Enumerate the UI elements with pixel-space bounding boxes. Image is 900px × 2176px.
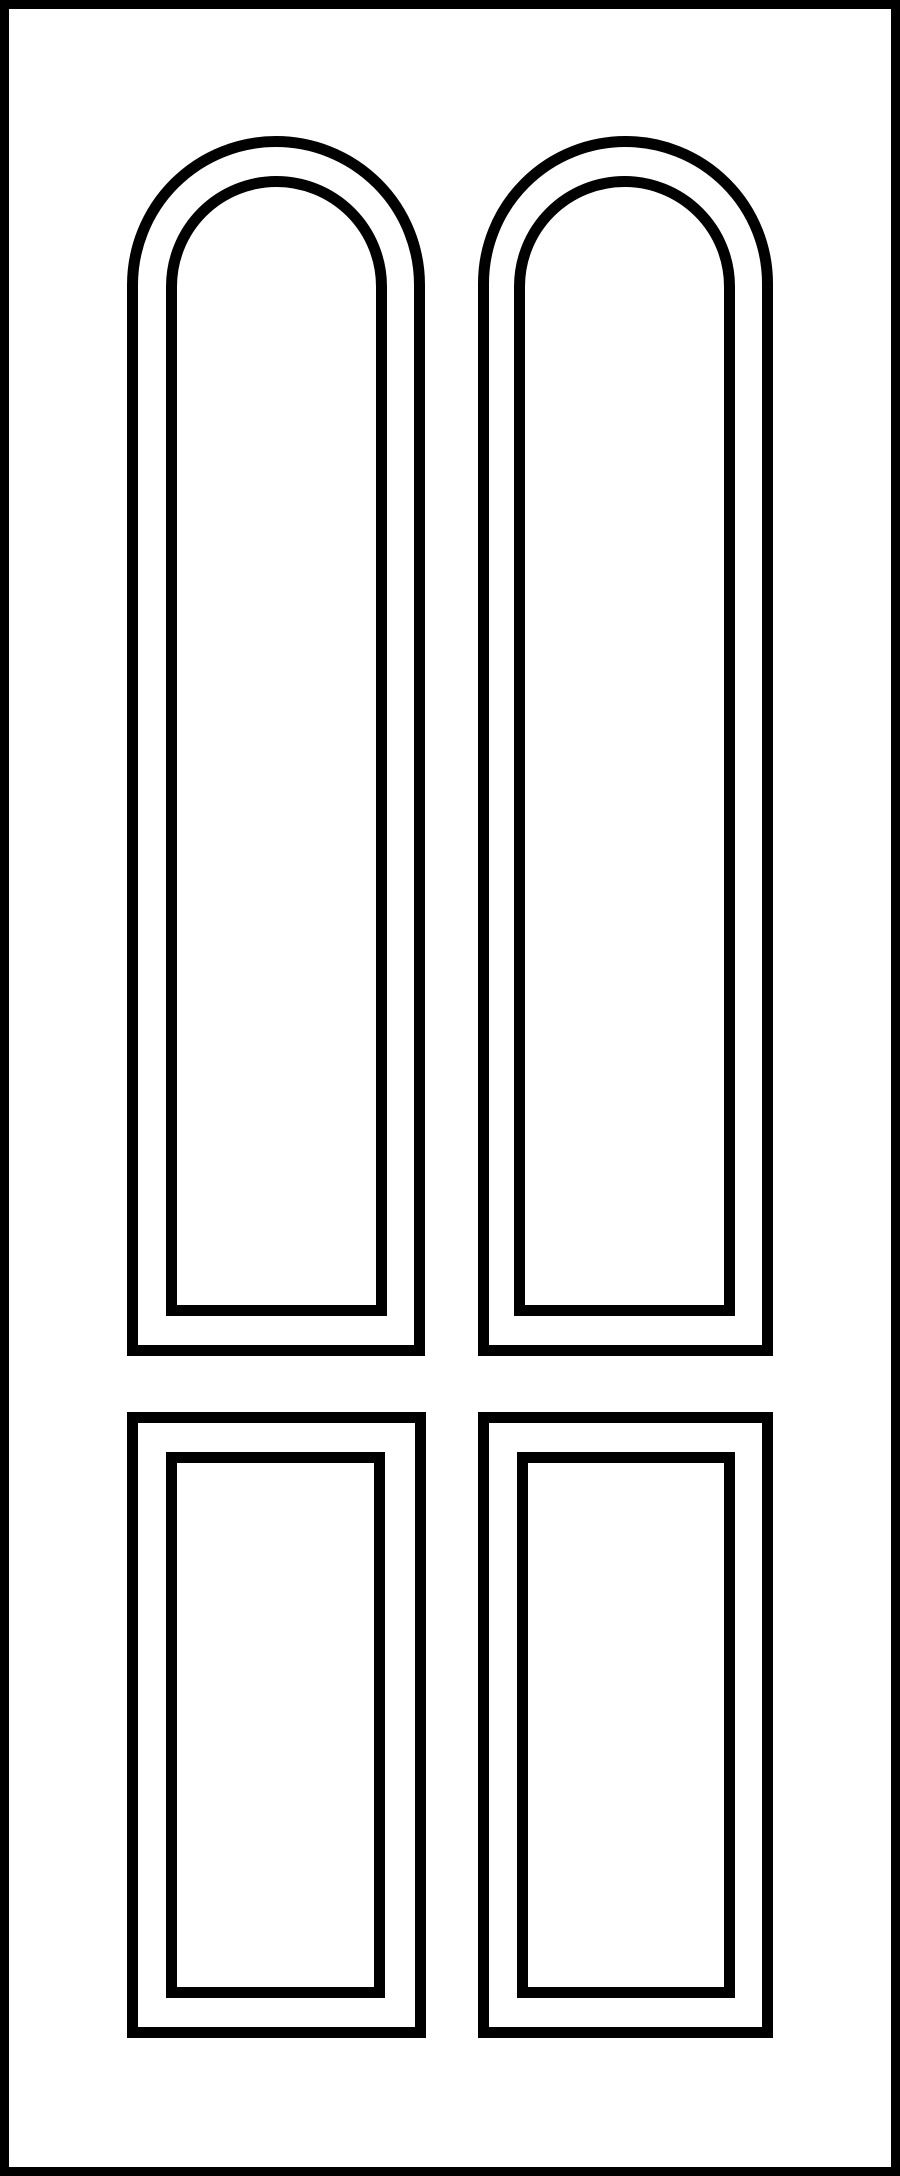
panel-bottom-left-rect-inner-outline <box>166 1452 385 1998</box>
door-illustration <box>0 0 900 2176</box>
panel-bottom-right-rect-inner-outline <box>517 1452 735 1998</box>
panel-top-right-arched-inner-outline <box>514 176 735 1316</box>
panel-top-left-arched-inner-outline <box>166 176 387 1316</box>
